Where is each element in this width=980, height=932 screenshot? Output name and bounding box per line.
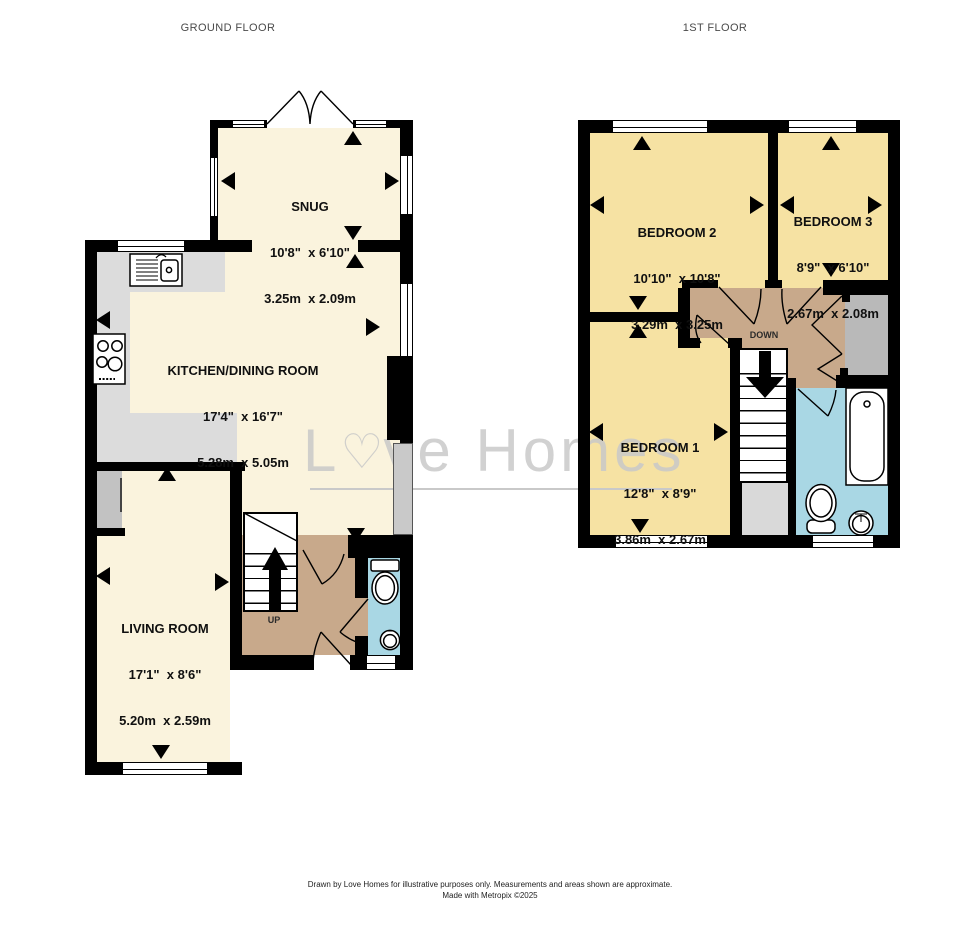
room-dims-metric: 5.28m x 5.05m — [168, 455, 319, 470]
floorplan-page: GROUND FLOOR 1ST FLOOR L♡ve Homes — [0, 0, 980, 932]
room-dims-metric: 2.67m x 2.08m — [787, 306, 879, 321]
stair-treads — [740, 362, 786, 481]
wall — [578, 120, 590, 548]
living-nook — [93, 470, 122, 528]
window — [788, 120, 857, 133]
room-dims-imperial: 8'9" x 6'10" — [787, 260, 879, 275]
room-label-kitchen: KITCHEN/DINING ROOM 17'4" x 16'7" 5.28m … — [168, 332, 319, 501]
room-dims-imperial: 12'8" x 8'9" — [614, 486, 706, 501]
window — [612, 120, 708, 133]
disclaimer-line1: Drawn by Love Homes for illustrative pur… — [0, 880, 980, 891]
stair-treads — [245, 542, 296, 610]
room-dims-metric: 3.29m x 3.25m — [631, 317, 723, 332]
room-dims-metric: 3.25m x 2.09m — [264, 291, 356, 306]
room-name: KITCHEN/DINING ROOM — [168, 363, 319, 378]
room-dims-imperial: 10'10" x 10'8" — [631, 271, 723, 286]
wall — [358, 240, 413, 252]
window — [210, 157, 218, 217]
bathroom-floor — [790, 388, 888, 535]
window — [812, 535, 874, 548]
wall — [788, 378, 796, 535]
window — [366, 655, 396, 670]
wall — [355, 558, 368, 598]
nook-door-line — [120, 478, 122, 512]
window — [232, 120, 265, 128]
staircase-first — [738, 348, 788, 483]
room-label-bedroom1: BEDROOM 1 12'8" x 8'9" 3.86m x 2.67m — [614, 409, 706, 578]
window — [122, 762, 208, 775]
wall — [355, 636, 368, 655]
heart-icon: ♡ — [340, 426, 383, 479]
wall — [840, 368, 848, 382]
window — [400, 155, 413, 215]
wall — [85, 528, 125, 536]
staircase-ground — [243, 512, 298, 612]
disclaimer-line2: Made with Metropix ©2025 — [0, 891, 980, 902]
wall — [765, 280, 782, 288]
window — [400, 283, 413, 357]
room-dims-metric: 5.20m x 2.59m — [119, 713, 211, 728]
garden-door-panel — [393, 443, 413, 535]
room-dims-imperial: 17'1" x 8'6" — [119, 667, 211, 682]
wall — [230, 655, 314, 670]
stairs-down-label: DOWN — [750, 330, 779, 340]
stair-void — [742, 483, 788, 535]
room-dims-imperial: 10'8" x 6'10" — [264, 245, 356, 260]
room-name: SNUG — [264, 199, 356, 214]
wall — [85, 240, 97, 775]
ground-floor-title: GROUND FLOOR — [181, 22, 276, 34]
wall — [396, 655, 413, 670]
french-doors — [267, 91, 353, 124]
bath-doorway — [796, 375, 836, 388]
wall — [210, 240, 252, 252]
room-name: BEDROOM 1 — [614, 440, 706, 455]
room-name: BEDROOM 2 — [631, 225, 723, 240]
room-label-living: LIVING ROOM 17'1" x 8'6" 5.20m x 2.59m — [119, 590, 211, 759]
room-dims-imperial: 17'4" x 16'7" — [168, 409, 319, 424]
room-label-bedroom2: BEDROOM 2 10'10" x 10'8" 3.29m x 3.25m — [631, 194, 723, 363]
wall — [387, 356, 413, 440]
window — [117, 240, 185, 252]
first-floor-title: 1ST FLOOR — [683, 22, 748, 34]
wc-floor — [368, 558, 400, 655]
stairs-up-label: UP — [268, 615, 281, 625]
room-label-bedroom3: BEDROOM 3 8'9" x 6'10" 2.67m x 2.08m — [787, 183, 879, 352]
room-dims-metric: 3.86m x 2.67m — [614, 532, 706, 547]
room-label-snug: SNUG 10'8" x 6'10" 3.25m x 2.09m — [264, 168, 356, 337]
wall — [768, 133, 778, 280]
wall — [888, 120, 900, 548]
window — [355, 120, 387, 128]
room-name: BEDROOM 3 — [787, 214, 879, 229]
disclaimer: Drawn by Love Homes for illustrative pur… — [0, 880, 980, 902]
wc-threshold — [355, 598, 368, 636]
room-name: LIVING ROOM — [119, 621, 211, 636]
wall — [350, 655, 366, 670]
